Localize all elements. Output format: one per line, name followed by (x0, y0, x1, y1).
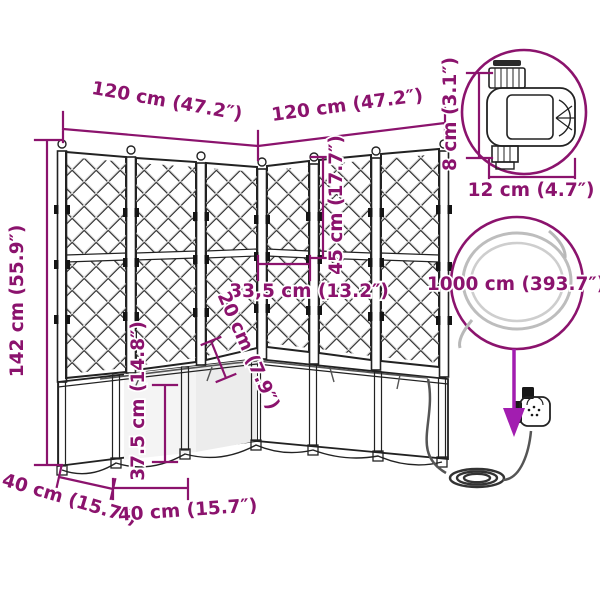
hose-coil (450, 469, 504, 487)
trellis-panel (381, 149, 439, 367)
dim-label-total-height: 142 cm (55.9″) (7, 225, 28, 378)
dim-label-width-right: 120 cm (47.2″) (270, 85, 424, 126)
trellis-panel (66, 152, 126, 378)
dim-label-lattice-spacing: 33,5 cm (13.2″) (229, 281, 389, 302)
dim-label-width-left: 120 cm (47.2″) (90, 78, 244, 125)
planter-feet (57, 440, 447, 475)
diagram-canvas: 120 cm (47.2″) 120 cm (47.2″) 142 cm (55… (0, 0, 600, 600)
dim-label-box-height: 37.5 cm (14.8″) (128, 321, 149, 481)
hose (503, 431, 531, 480)
dim-label-timer-height: 8 cm (3.1″) (440, 57, 461, 171)
timer-magnifier (462, 50, 586, 174)
dim-label-hose-length: 1000 cm (393.7″) (427, 274, 600, 295)
trellis-panel (267, 161, 309, 352)
dim-label-upper-trellis: 45 cm (17.7″) (326, 135, 347, 275)
dim-label-timer-width: 12 cm (4.7″) (468, 180, 595, 201)
planter-dimension-diagram: 120 cm (47.2″) 120 cm (47.2″) 142 cm (55… (0, 0, 600, 600)
dim-label-front-width: 40 cm (15.7″) (117, 495, 258, 526)
